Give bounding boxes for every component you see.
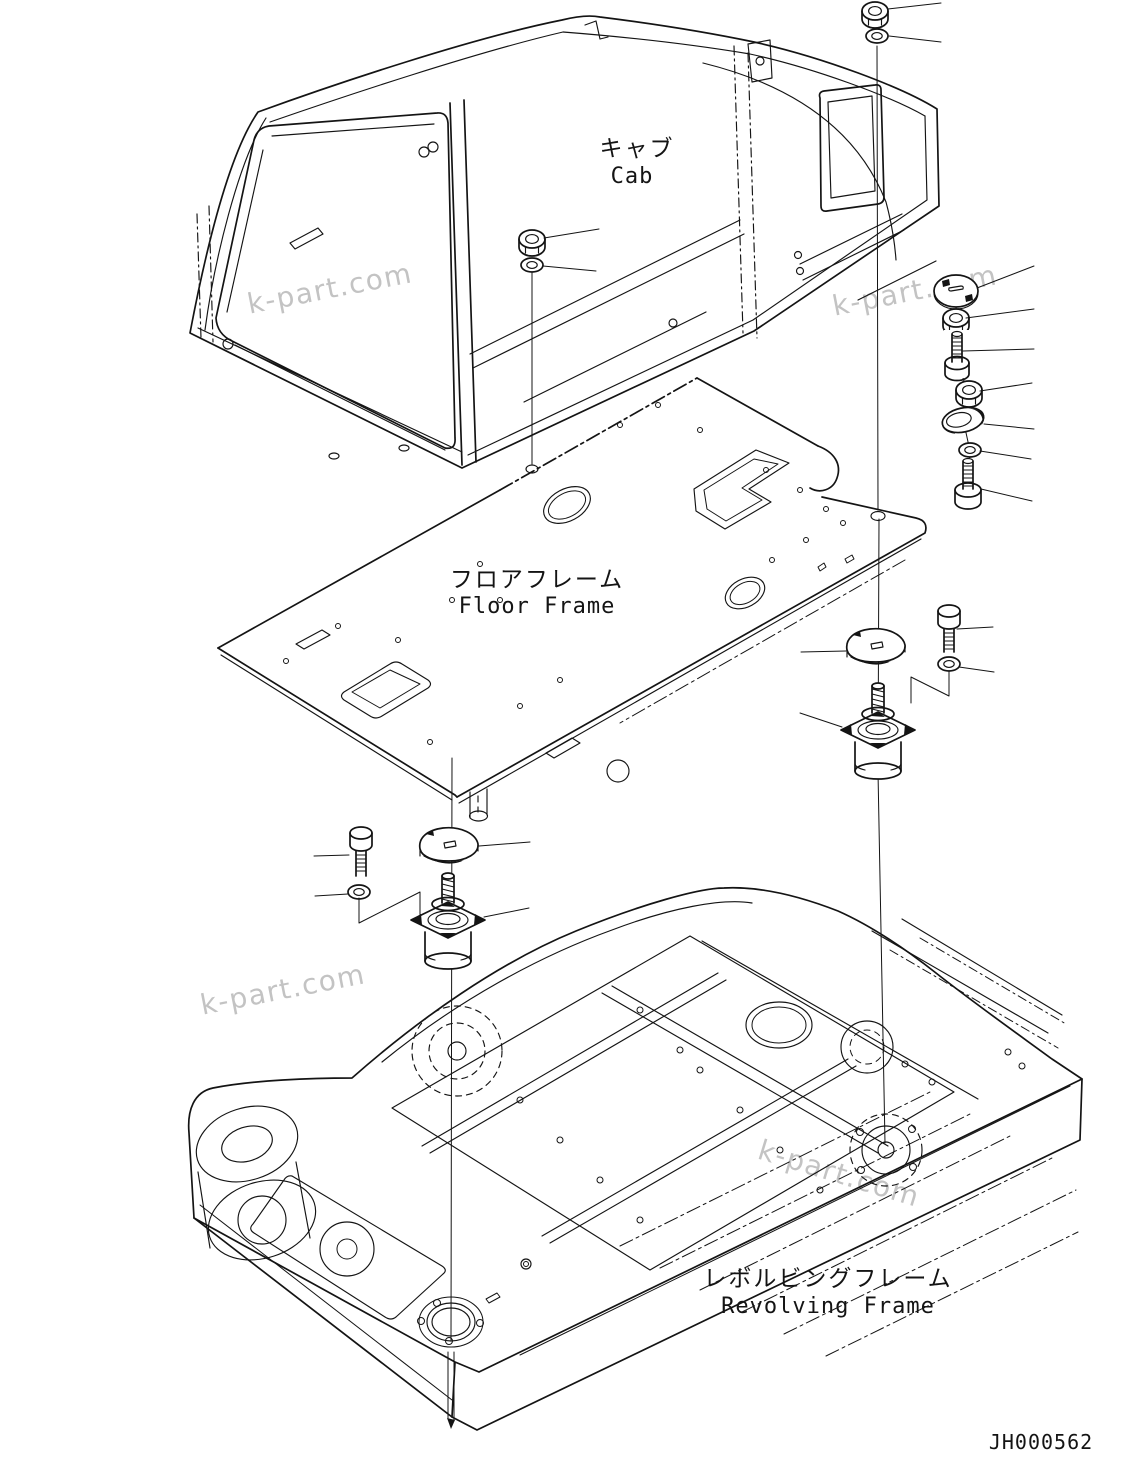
cab-label-jp: キャブ <box>600 136 675 162</box>
hex-bolt-icon <box>954 458 982 509</box>
hinge-icon <box>419 147 429 157</box>
flat-washer-icon <box>938 657 960 671</box>
drawing-number: JH000562 <box>989 1430 1093 1454</box>
break-symbol <box>911 671 949 703</box>
hex-nut-icon <box>519 230 545 256</box>
cam-washer-plate-icon <box>940 404 986 436</box>
left-cab-mount-cluster <box>314 827 530 969</box>
right-mount-hardware-stack <box>934 266 1034 509</box>
flat-washer-icon <box>521 258 543 272</box>
left-mount-bore <box>412 1006 502 1096</box>
cab-floor-nut-washer <box>519 229 599 272</box>
cab-top-mount-hardware <box>862 2 941 43</box>
bottom-flange-hole <box>418 1293 501 1347</box>
mount-top-disc-icon <box>847 629 905 665</box>
floor-frame-plate: フロアフレーム Floor Frame <box>218 378 926 821</box>
cab-rubber-mount-icon <box>841 683 915 779</box>
cab-label-en: Cab <box>611 164 654 189</box>
flat-washer-icon <box>348 885 370 899</box>
plate-stub-cylinder <box>470 789 488 821</box>
floor-frame-label-en: Floor Frame <box>459 594 616 619</box>
flat-washer-icon <box>866 29 888 43</box>
watermark-top-left: k-part.com <box>245 256 416 320</box>
stud-bolt-icon <box>944 330 970 381</box>
floor-frame-label-jp: フロアフレーム <box>450 567 624 593</box>
plate-notch <box>810 446 838 491</box>
exploded-parts-drawing: k-part.com k-part.com k-part.com k-part.… <box>0 0 1139 1475</box>
mount-top-disc-icon <box>420 828 478 864</box>
mount-cover-plate-icon <box>934 275 978 309</box>
revolving-frame-label-en: Revolving Frame <box>721 1294 935 1319</box>
cab-small-holes <box>223 57 804 459</box>
right-cab-mount-cluster <box>800 605 994 779</box>
hex-nut-icon <box>862 2 888 28</box>
hex-bolt-icon <box>349 827 373 877</box>
rear-pillar <box>734 46 757 338</box>
flat-washer-icon <box>959 443 981 457</box>
hex-nut-icon <box>956 381 982 407</box>
cab-assembly: キャブ Cab <box>190 16 939 468</box>
parts-diagram-page: k-part.com k-part.com k-part.com k-part.… <box>0 0 1139 1475</box>
cab-rubber-mount-icon <box>411 873 485 969</box>
revolving-frame-label-jp: レボルビングフレーム <box>703 1266 952 1292</box>
watermark-bottom-left: k-part.com <box>198 957 369 1021</box>
cab-outline <box>190 16 939 468</box>
watermark-bottom-right: k-part.com <box>754 1133 924 1214</box>
